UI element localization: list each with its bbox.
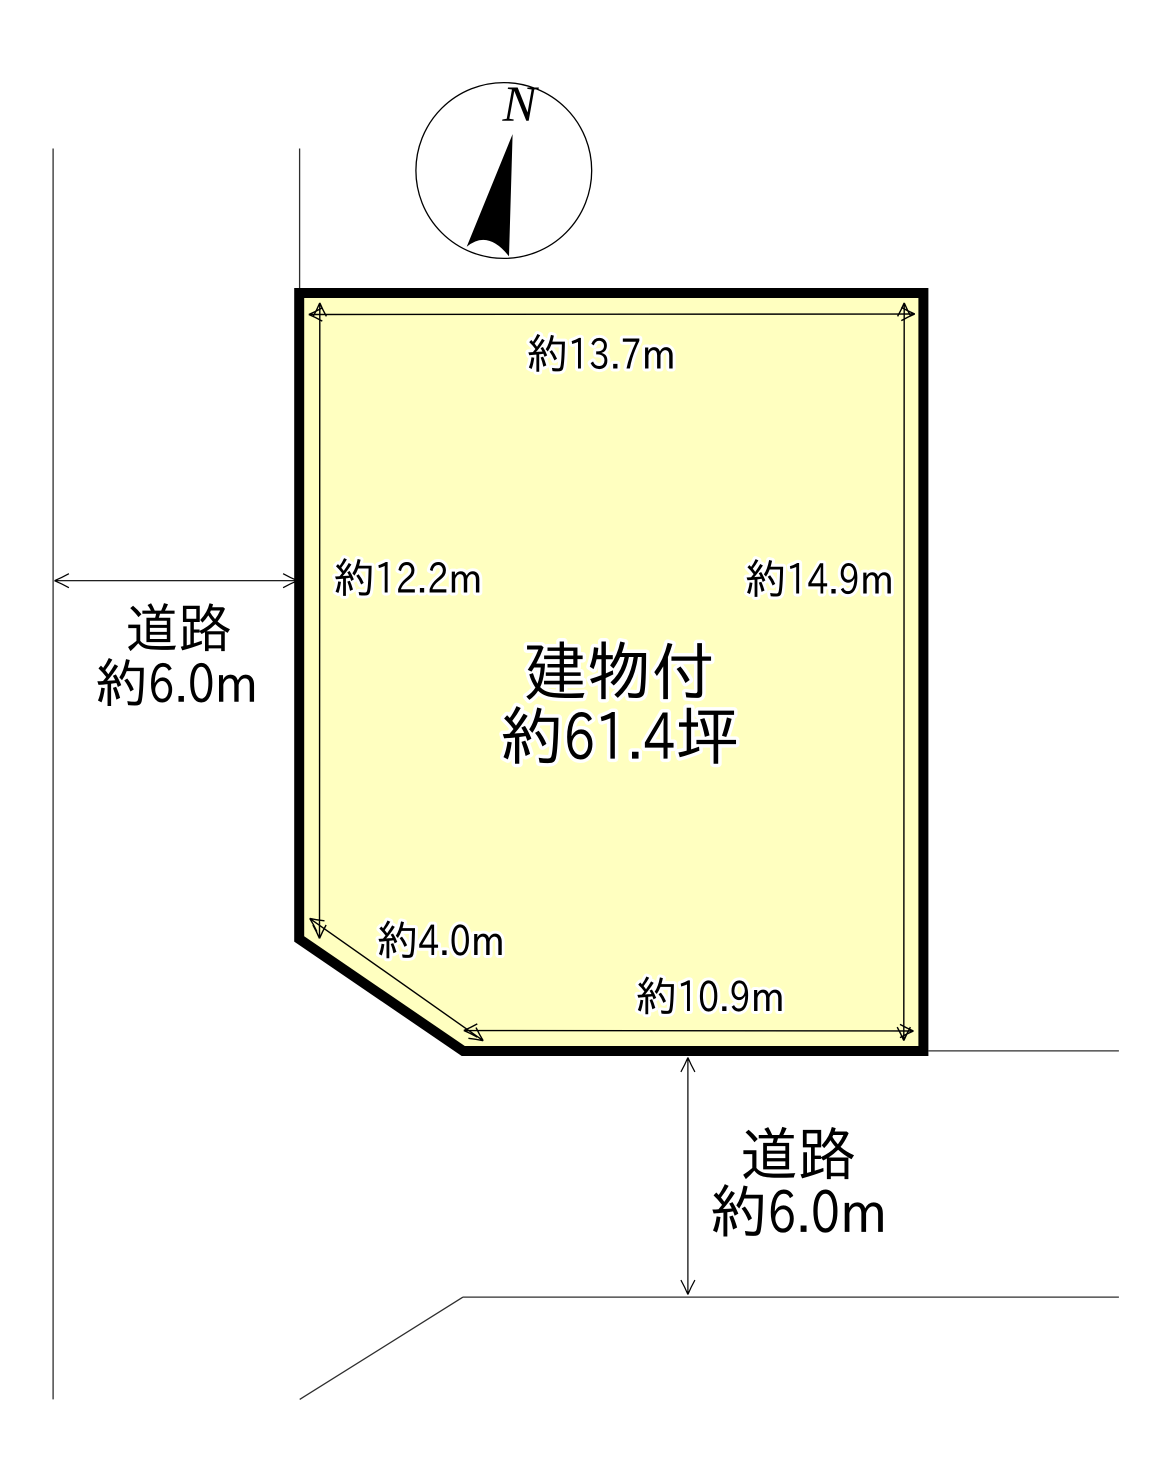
svg-text:N: N <box>501 77 539 133</box>
